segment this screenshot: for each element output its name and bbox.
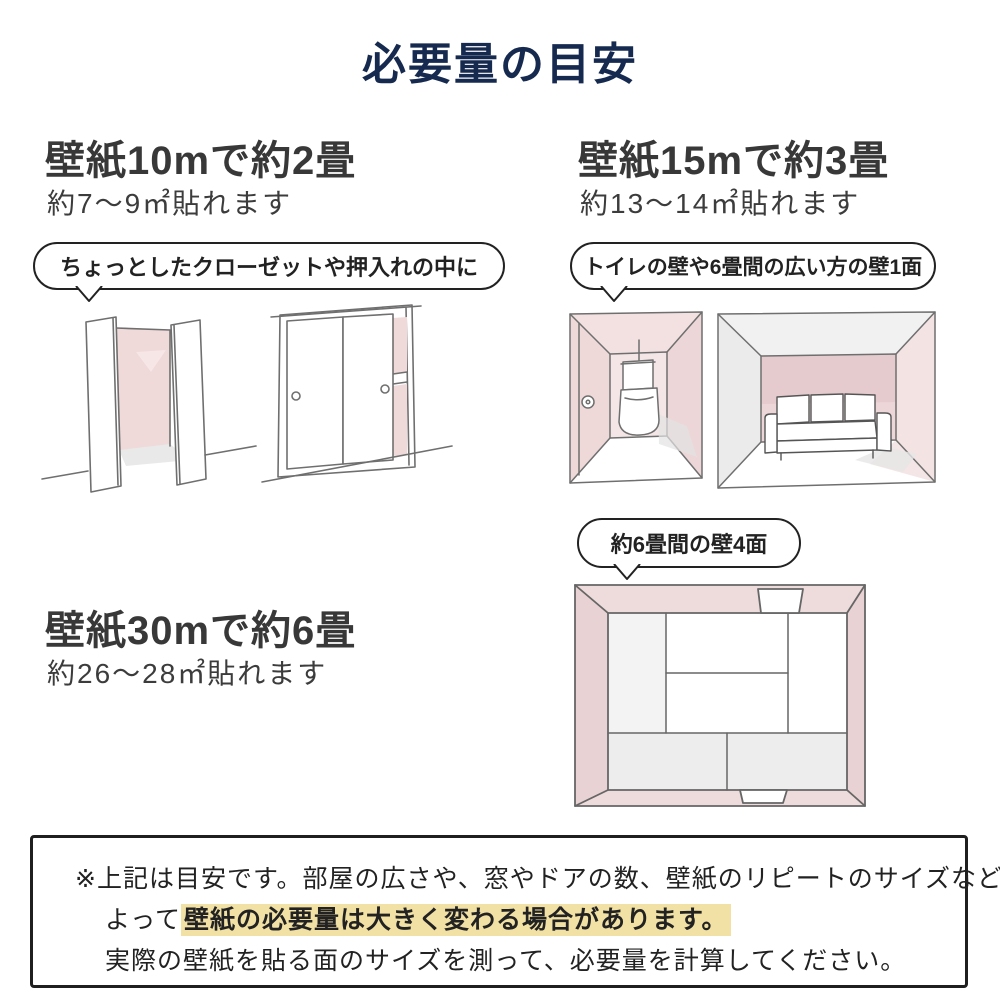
- section-10m-callout: ちょっとしたクローゼットや押入れの中に: [33, 242, 505, 290]
- tatami-room-top-view-illustration: [550, 575, 880, 815]
- closet-sketches-illustration: [40, 296, 520, 506]
- note-line-2-prefix: よって: [105, 906, 181, 934]
- section-30m-callout: 約6畳間の壁4面: [577, 518, 801, 568]
- note-line-1: ※上記は目安です。部屋の広さや、窓やドアの数、壁紙のリピートのサイズなどに: [75, 859, 965, 900]
- wallpaper-quantity-guide: 必要量の目安 壁紙10mで約2畳 約7〜9㎡貼れます ちょっとしたクローゼットや…: [0, 0, 1000, 1000]
- section-15m-heading: 壁紙15mで約3畳: [578, 128, 889, 186]
- callout-text: トイレの壁や6畳間の広い方の壁1面: [584, 251, 922, 281]
- section-15m-callout: トイレの壁や6畳間の広い方の壁1面: [570, 242, 936, 290]
- callout-text: ちょっとしたクローゼットや押入れの中に: [60, 250, 478, 282]
- section-15m-subheading: 約13〜14㎡貼れます: [580, 182, 860, 222]
- sliding-closet-sketch: [262, 305, 452, 482]
- note-line-3: 実際の壁紙を貼る面のサイズを測って、必要量を計算してください。: [75, 941, 965, 982]
- note-line-2: よって壁紙の必要量は大きく変わる場合があります。: [75, 900, 965, 941]
- note-highlighted-text: 壁紙の必要量は大きく変わる場合があります。: [181, 904, 731, 936]
- section-30m-heading: 壁紙30mで約6畳: [45, 598, 356, 656]
- open-closet-sketch: [42, 317, 256, 492]
- section-10m-heading: 壁紙10mで約2畳: [45, 128, 356, 186]
- toilet-room-sketch: [570, 312, 702, 483]
- room-sketches-illustration: [555, 302, 955, 494]
- callout-text: 約6畳間の壁4面: [611, 527, 767, 559]
- section-10m-subheading: 約7〜9㎡貼れます: [47, 182, 292, 222]
- section-30m-subheading: 約26〜28㎡貼れます: [47, 652, 327, 692]
- usage-note-box: ※上記は目安です。部屋の広さや、窓やドアの数、壁紙のリピートのサイズなどに よっ…: [30, 835, 968, 988]
- living-room-sketch: [718, 312, 935, 488]
- page-title: 必要量の目安: [0, 28, 1000, 92]
